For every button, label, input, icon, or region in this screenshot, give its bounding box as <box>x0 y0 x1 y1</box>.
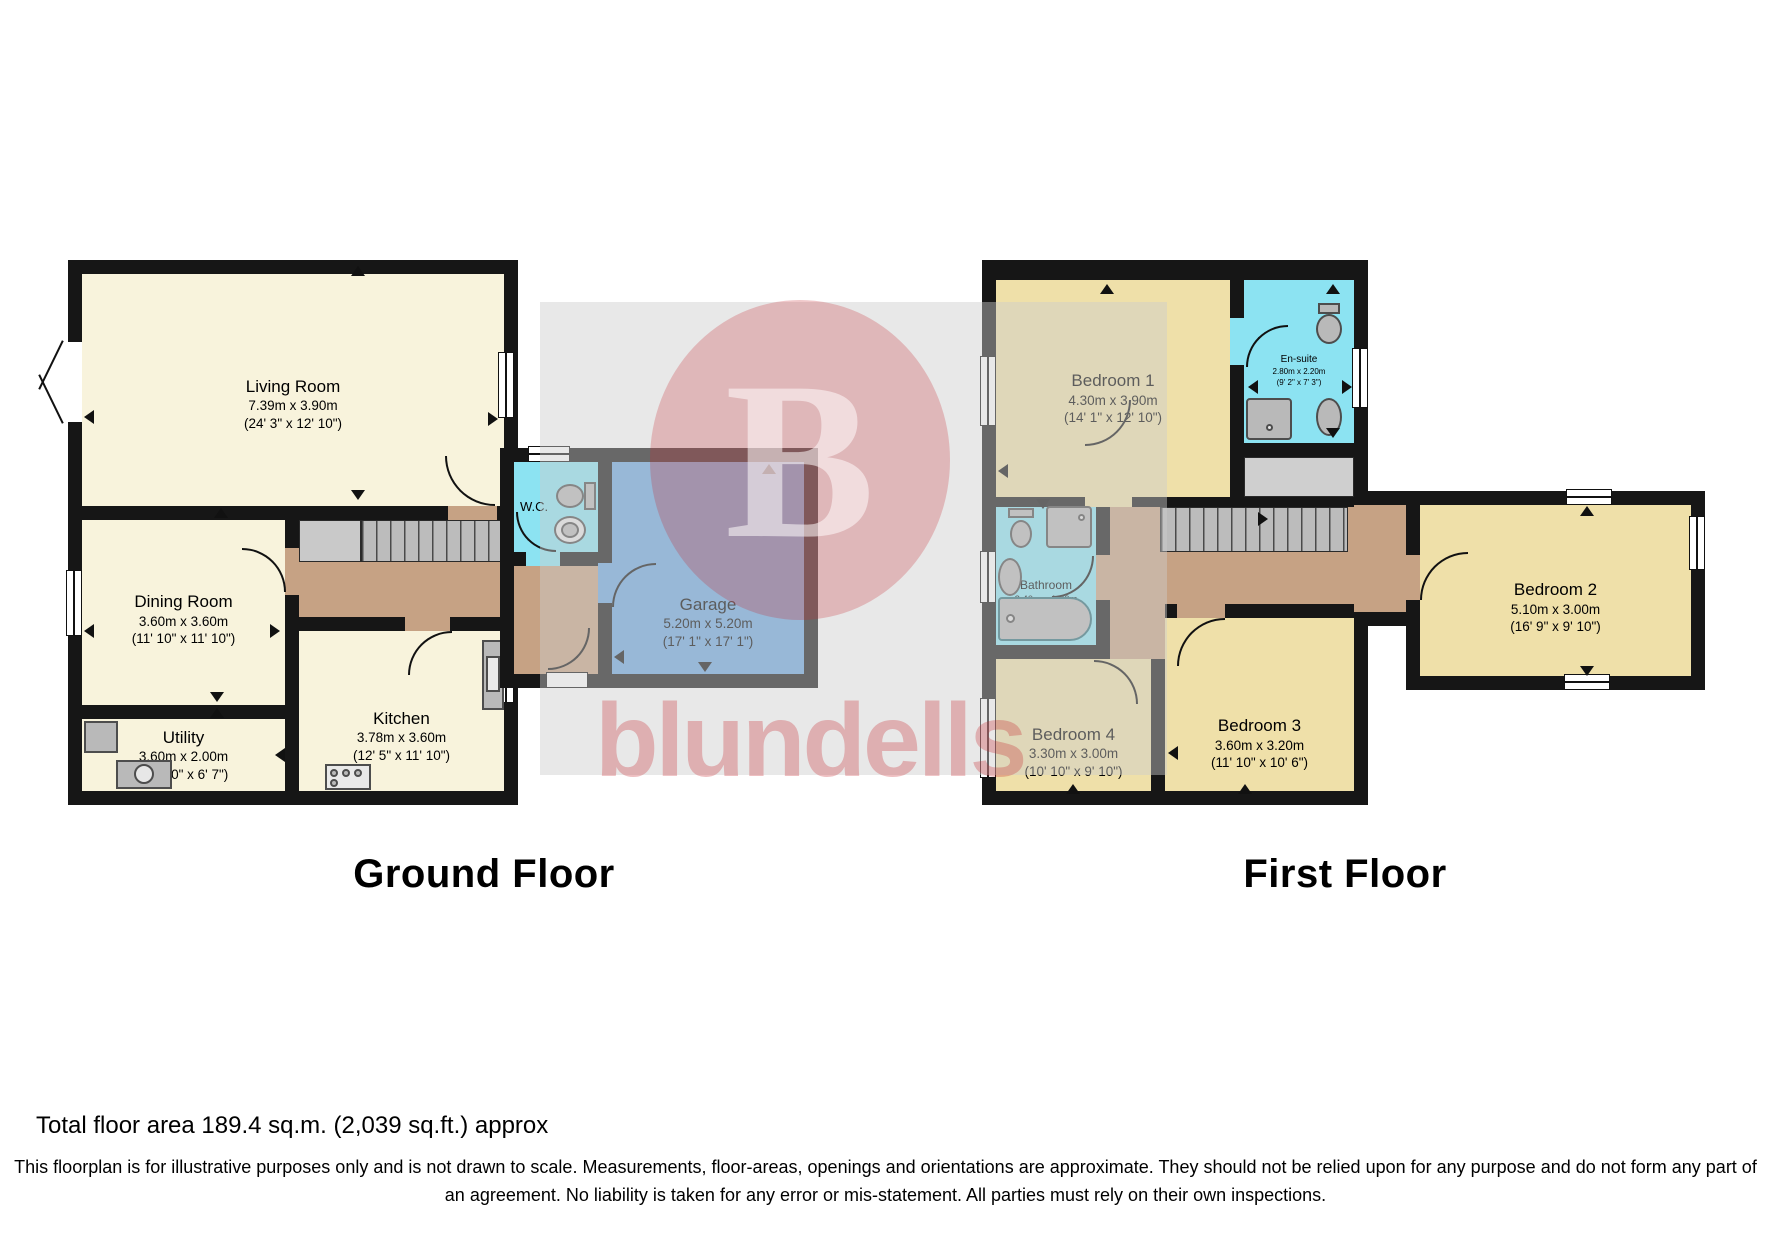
room-metric: 7.39m x 3.90m <box>248 398 337 414</box>
room-label: Bedroom 2 <box>1514 580 1597 600</box>
room-imperial: (11' 10" x 10' 6") <box>1211 755 1308 771</box>
room-metric: 3.78m x 3.60m <box>357 730 446 746</box>
window <box>66 570 82 636</box>
room-imperial: (12' 5" x 11' 10") <box>353 748 450 764</box>
door-gap <box>448 506 497 520</box>
floorplan-canvas: Living Room 7.39m x 3.90m (24' 3" x 12' … <box>0 0 1771 1240</box>
opening-marker <box>351 266 365 276</box>
door-gap <box>1177 604 1225 618</box>
toilet-icon <box>1316 314 1342 344</box>
bay-window-line <box>38 374 63 423</box>
stairs-ground <box>361 520 504 562</box>
shower-icon <box>1246 398 1292 440</box>
window <box>1566 489 1612 505</box>
stairs-first <box>1160 507 1348 552</box>
room-metric: 3.60m x 3.20m <box>1215 738 1304 754</box>
window <box>1352 348 1368 408</box>
brand-logo-letter: B <box>725 330 875 590</box>
opening-marker <box>1168 746 1178 760</box>
stove-burner-icon <box>342 769 350 777</box>
opening-marker <box>1580 666 1594 676</box>
opening-marker <box>1238 784 1252 794</box>
window <box>1564 674 1610 690</box>
shower-drain-icon <box>1266 424 1273 431</box>
brand-logo: B <box>650 300 950 620</box>
room-label: Living Room <box>246 377 341 397</box>
room-imperial: (16' 9" x 9' 10") <box>1510 619 1601 635</box>
opening-marker <box>270 624 280 638</box>
opening-marker <box>1066 784 1080 794</box>
opening-marker <box>351 490 365 500</box>
wall-patch <box>1406 505 1420 555</box>
ground-floor-title: Ground Floor <box>353 852 615 897</box>
opening-marker <box>214 508 228 518</box>
room-imperial: (9' 2" x 7' 3") <box>1277 378 1322 387</box>
opening-marker <box>1326 428 1340 438</box>
opening-marker <box>1258 512 1268 526</box>
opening-marker <box>488 412 498 426</box>
room-imperial: (24' 3" x 12' 10") <box>244 416 342 432</box>
total-area-text: Total floor area 189.4 sq.m. (2,039 sq.f… <box>36 1112 548 1140</box>
stove-burner-icon <box>330 769 338 777</box>
stairwell-void <box>1244 457 1354 497</box>
opening-marker <box>1248 380 1258 394</box>
wall-patch <box>1406 600 1420 612</box>
room-label: Utility <box>163 728 205 748</box>
room-metric: 5.10m x 3.00m <box>1511 602 1600 618</box>
stove-burner-icon <box>330 779 338 787</box>
opening-marker <box>84 410 94 424</box>
room-imperial: (11' 10" x 11' 10") <box>132 631 236 647</box>
room-metric: 3.60m x 3.60m <box>139 614 228 630</box>
window <box>1689 516 1705 570</box>
stove-burner-icon <box>354 769 362 777</box>
bay-window-gap <box>68 342 82 422</box>
room-dining-room: Dining Room 3.60m x 3.60m (11' 10" x 11'… <box>82 520 285 705</box>
first-floor-title: First Floor <box>1243 852 1446 897</box>
opening-marker <box>1342 380 1352 394</box>
room-living-room: Living Room 7.39m x 3.90m (24' 3" x 12' … <box>82 274 504 506</box>
opening-marker <box>1326 284 1340 294</box>
door-gap <box>405 617 450 631</box>
room-metric: 2.80m x 2.20m <box>1273 367 1326 376</box>
opening-marker <box>275 748 285 762</box>
room-label: Bedroom 3 <box>1218 716 1301 736</box>
washer-icon <box>84 721 118 753</box>
washer-door-icon <box>134 764 154 784</box>
stairs-landing <box>299 520 361 562</box>
opening-marker <box>1580 506 1594 516</box>
room-label: Dining Room <box>134 592 232 612</box>
room-label: Kitchen <box>373 709 430 729</box>
opening-marker <box>1100 284 1114 294</box>
window <box>498 352 514 418</box>
opening-marker <box>210 692 224 702</box>
door-gap <box>1230 318 1244 365</box>
counter-sink-icon <box>486 656 500 692</box>
disclaimer-text: This floorplan is for illustrative purpo… <box>13 1154 1758 1210</box>
brand-wordmark: blundells <box>595 682 1024 801</box>
opening-marker <box>210 708 224 718</box>
door-gap <box>285 548 299 595</box>
opening-marker <box>84 624 94 638</box>
toilet-tank-icon <box>1318 303 1340 314</box>
